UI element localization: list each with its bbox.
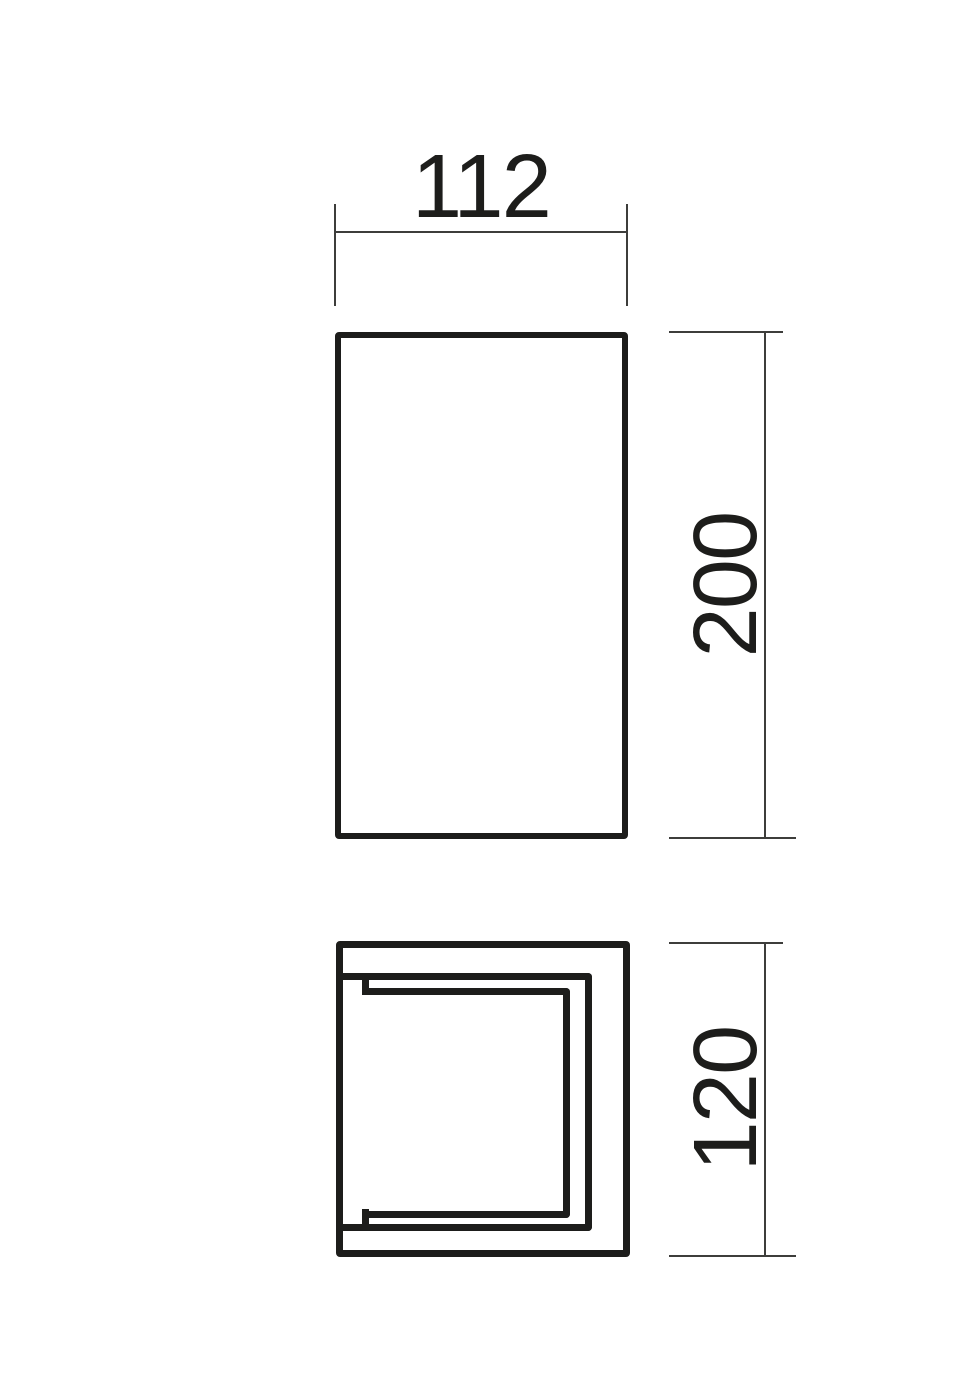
section-view-channel-inner	[362, 988, 570, 1218]
section-view-channel-step-bottom	[362, 1209, 369, 1231]
front-view-outline	[335, 332, 628, 839]
dim-width-label: 112	[331, 142, 631, 232]
technical-drawing-canvas: 112 200 120	[0, 0, 980, 1400]
dim-depth-extension-bottom	[669, 1255, 796, 1257]
dim-height-label: 200	[681, 435, 771, 735]
dim-height-extension-bottom	[669, 837, 796, 839]
dim-depth-label: 120	[681, 949, 771, 1249]
section-view-channel-step-top	[362, 973, 369, 995]
